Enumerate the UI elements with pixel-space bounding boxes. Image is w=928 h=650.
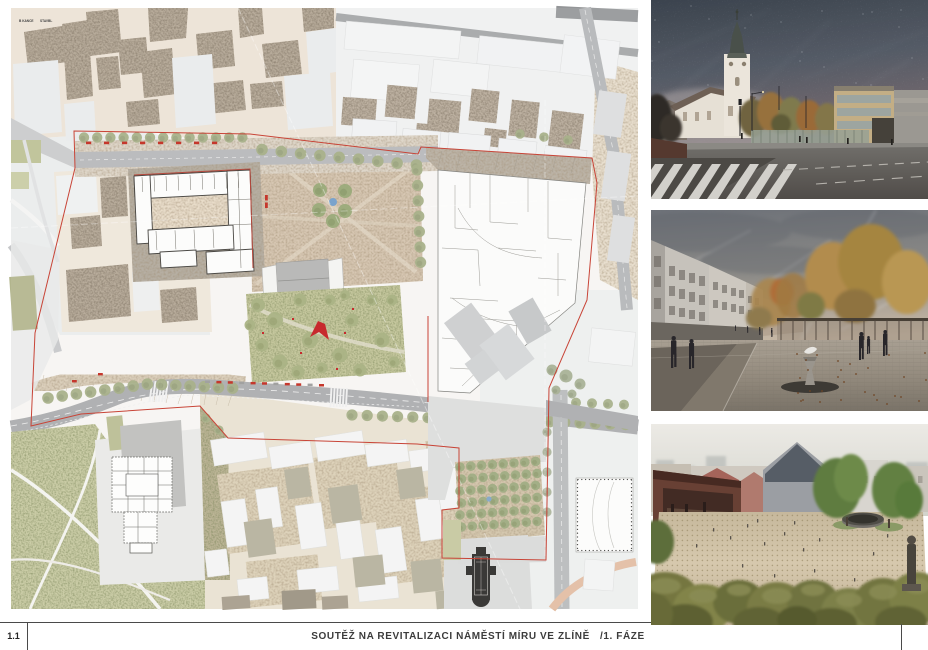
svg-text:B KANCE: B KANCE xyxy=(19,19,34,23)
svg-text:STAVBL: STAVBL xyxy=(40,19,52,23)
